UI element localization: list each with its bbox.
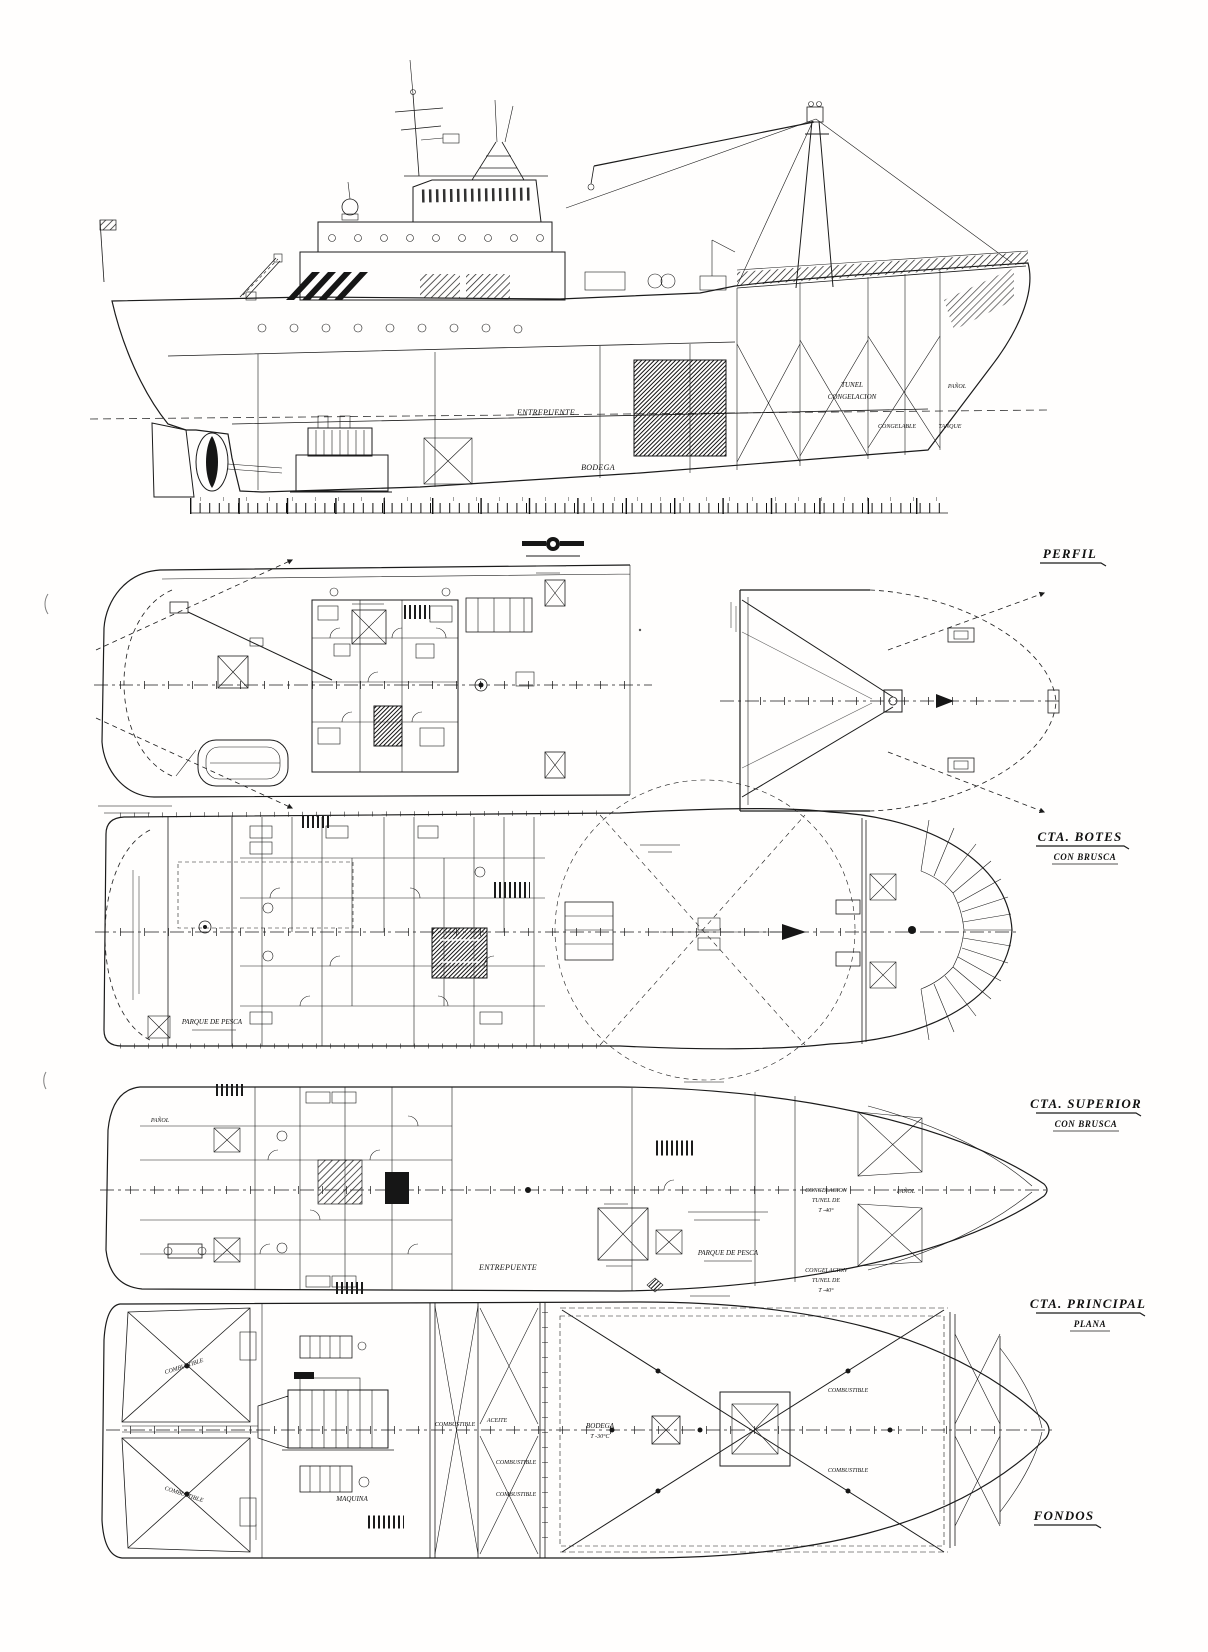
porthole-row-deckhouse (329, 235, 544, 242)
label-combustible-2: COMBUSTIBLE (435, 1422, 476, 1428)
view-title-perfil: PERFIL (1040, 546, 1106, 566)
main-engine-silhouette (290, 416, 392, 492)
view-cta-principal: ENTREPUENTE PARQUE DE PESCA CONGELACION … (100, 1082, 1146, 1331)
galley-hatch (318, 1160, 362, 1204)
stern-xbox (148, 1016, 170, 1038)
wheelhouse-windows (422, 194, 532, 196)
label-combustible-3: COMBUSTIBLE (496, 1460, 537, 1466)
propeller-blades (206, 436, 218, 488)
label-combustible-6: COMBUSTIBLE (828, 1468, 869, 1474)
label-panol-aft: PAÑOL (150, 1116, 170, 1124)
lattice-mast (472, 100, 524, 180)
title-principal: CTA. PRINCIPAL (1030, 1296, 1146, 1311)
title-botes: CTA. BOTES (1038, 829, 1123, 844)
central-hatch-xbox (598, 1204, 648, 1266)
label-congelacion: CONGELACION (828, 393, 877, 401)
view-title-superior: CTA. SUPERIOR CON BRUSCA (1030, 1096, 1142, 1131)
label-cong-fwd-1: CONGELACION (805, 1188, 848, 1194)
stern-crane (240, 254, 282, 300)
title-superior: CTA. SUPERIOR (1030, 1096, 1142, 1111)
subtitle-superior: CON BRUSCA (1055, 1119, 1118, 1129)
view-cta-botes: CTA. BOTES CON BRUSCA (94, 560, 1129, 864)
fishpark-fittings (647, 1082, 768, 1296)
title-perfil: PERFIL (1043, 546, 1097, 561)
label-cong-fwd-2: TUNEL DE (812, 1198, 840, 1204)
porthole-row-hull (258, 324, 522, 333)
view-title-fondos: FONDOS (1033, 1508, 1101, 1528)
label-bodega-temp: T -30°C (590, 1433, 610, 1440)
hatched-cargo-block (634, 360, 726, 456)
bowplan-outline (870, 590, 1056, 811)
cabin-block (240, 817, 545, 1046)
deck-crane (170, 602, 332, 680)
label-panol-perfil: PAÑOL (947, 382, 967, 390)
label-bodega-perfil: BODEGA (581, 463, 615, 472)
lifeboat (176, 740, 288, 786)
skylight (466, 598, 532, 632)
windlass-pair (948, 628, 974, 772)
label-entrepuente-perfil: ENTREPUENTE (516, 408, 575, 417)
deck-gear (585, 240, 735, 290)
label-bodega-fondos: BODEGA (586, 1422, 615, 1430)
view-perfil: ENTREPUENTE BODEGA TUNEL CONGELACION PAÑ… (90, 60, 1106, 566)
stern-winch (168, 1244, 202, 1258)
view-title-principal: CTA. PRINCIPAL PLANA (1030, 1296, 1146, 1331)
hatch-boxes (545, 580, 565, 778)
radar-scanner (443, 134, 459, 143)
label-maquina: MAQUINA (335, 1495, 368, 1503)
dashed-zone (178, 862, 353, 928)
label-tunel: TUNEL (841, 381, 863, 389)
view-cta-superior: PARQUE DE PESCA (95, 780, 1142, 1131)
label-combustible-5: COMBUSTIBLE (828, 1388, 869, 1394)
hatch-xbox-aft (218, 656, 248, 688)
stove-block (385, 1172, 409, 1204)
view-title-botes: CTA. BOTES CON BRUSCA (1036, 829, 1129, 864)
blueprint-page: ENTREPUENTE BODEGA TUNEL CONGELACION PAÑ… (0, 0, 1208, 1652)
frame-ruler (190, 499, 948, 513)
aft-tank-xbox (424, 438, 472, 484)
satcom-dome (342, 182, 358, 220)
label-congelable: CONGELABLE (878, 424, 916, 430)
bow-hatch-wedge (944, 268, 1014, 330)
galley-block (432, 928, 487, 978)
label-cong-aft-2: TUNEL DE (812, 1278, 840, 1284)
label-panol-fwd: PAÑOL (896, 1187, 916, 1195)
midship-tank-xpanels (430, 1303, 545, 1558)
trawl-deck (555, 780, 860, 1080)
label-combustible-4: COMBUSTIBLE (496, 1492, 537, 1498)
view-fondos: COMBUSTIBLE COMBUSTIBLE MAQUINA COMBUST (102, 1302, 1101, 1558)
label-aceite: ACEITE (486, 1418, 508, 1424)
label-parque-pesca-principal: PARQUE DE PESCA (697, 1249, 759, 1257)
net-drum (565, 902, 613, 960)
label-tanque: TANQUE (939, 424, 962, 430)
hull-profile-outline (112, 263, 1030, 492)
stem-fitting (1048, 690, 1059, 713)
label-combustible-1: COMBUSTIBLE (164, 1486, 205, 1504)
stern-flag-mast (100, 220, 116, 282)
title-fondos: FONDOS (1033, 1508, 1095, 1523)
label-entrepuente-principal: ENTREPUENTE (478, 1263, 537, 1272)
engine-room (122, 1303, 404, 1558)
rudder (152, 423, 194, 497)
scan-artifacts (44, 594, 641, 1089)
label-cong-fwd-3: T -40° (818, 1207, 834, 1214)
label-cong-aft-3: T -40° (818, 1287, 834, 1294)
label-combustible-0: COMBUSTIBLE (164, 1358, 205, 1376)
funnel-casing (374, 706, 402, 746)
label-cong-aft-1: CONGELACION (805, 1268, 848, 1274)
subtitle-principal: PLANA (1074, 1319, 1107, 1329)
blueprint-canvas: ENTREPUENTE BODEGA TUNEL CONGELACION PAÑ… (0, 0, 1208, 1652)
label-parque-pesca-superior: PARQUE DE PESCA (181, 1018, 243, 1026)
scale-symbol (522, 537, 584, 556)
subtitle-botes: CON BRUSCA (1054, 852, 1117, 862)
bow-cone-fitting (936, 694, 954, 708)
striped-panels (286, 272, 510, 300)
main-mast (395, 60, 459, 176)
bow-fan-ribs (921, 820, 1012, 1040)
bow-hatch-xboxes (870, 874, 896, 988)
wheelhouse (413, 180, 541, 222)
